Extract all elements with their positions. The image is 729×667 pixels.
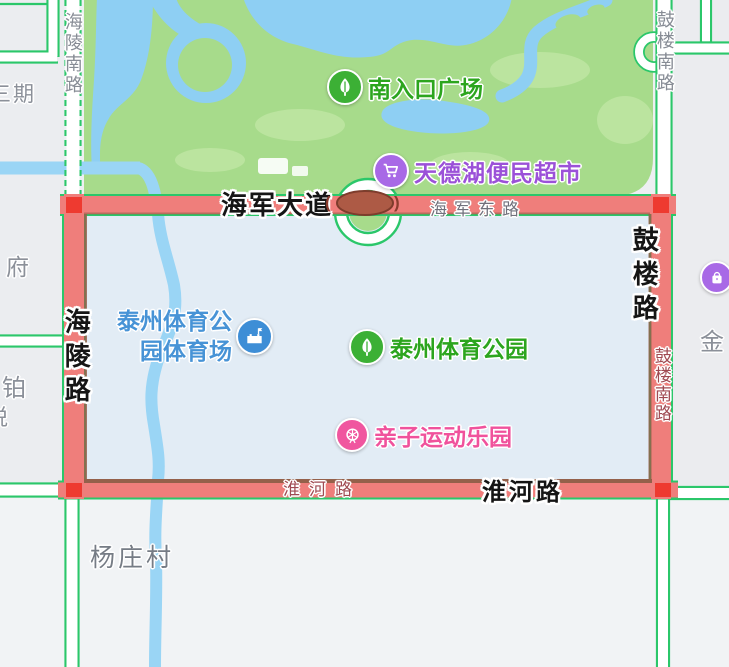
poi-south-entrance-plaza[interactable]: 南入口广场 [327, 69, 483, 105]
road-label-gulou-south-top: 鼓楼南路 [655, 10, 674, 94]
poi-kids-park[interactable]: 亲子运动乐园 [335, 418, 512, 452]
bg-bottom-area [0, 498, 729, 667]
plaza-shape [292, 166, 308, 176]
poi-label-stadium[interactable]: 泰州体育公 园体育场 [100, 306, 232, 366]
area-label-jin: 金 [700, 330, 724, 355]
road-label-hailing-south: 海陵南路 [63, 12, 82, 96]
ferris-wheel-icon[interactable] [335, 418, 369, 452]
stadium-icon[interactable] [236, 318, 273, 355]
road-label-hailing: 海陵路 [62, 308, 89, 410]
area-label-fu: 府 [6, 255, 29, 279]
poi-stadium[interactable]: 泰州体育公 园体育场 [100, 306, 273, 366]
road-label-huaihe-small: 淮河路 [283, 481, 361, 499]
road-label-gulou-south-on-road: 鼓楼南路 [652, 347, 670, 423]
bridge-mark-left: ( [325, 194, 331, 212]
poi-label-south-entrance-plaza[interactable]: 南入口广场 [368, 70, 483, 104]
road-label-haijun-east: 海军东路 [430, 201, 526, 219]
poi-label-tiandehu-market[interactable]: 天德湖便民超市 [414, 154, 582, 188]
shopping-cart-icon[interactable] [373, 153, 409, 189]
plaza-shape [258, 158, 288, 174]
pond-island [178, 38, 232, 92]
poi-label-kids-park[interactable]: 亲子运动乐园 [374, 418, 512, 452]
poi-tiandehu-market[interactable]: 天德湖便民超市 [373, 153, 582, 189]
bg-left-blocks [0, 0, 64, 500]
area-label-phase-three: 三期 [0, 84, 36, 106]
bridge-mark-right: ) [394, 194, 400, 212]
road-label-gulou: 鼓楼路 [630, 226, 657, 328]
poi-label-sports-park[interactable]: 泰州体育公园 [390, 330, 528, 364]
map-canvas[interactable]: 海陵南路 鼓楼南路 鼓楼南路 海军东路 淮河路 海军大道 海陵路 鼓楼路 淮河路… [0, 0, 729, 667]
bg-right-blocks [672, 0, 729, 500]
area-label-yangzhuang-village: 杨庄村 [90, 545, 174, 571]
poi-sports-park[interactable]: 泰州体育公园 [349, 329, 528, 365]
road-label-huaihe-bold: 淮河路 [482, 480, 563, 505]
poi-shop-marker[interactable] [700, 261, 729, 294]
bridge-oval [337, 191, 393, 215]
shopping-bag-icon[interactable] [700, 261, 729, 294]
tree-icon[interactable] [349, 329, 385, 365]
area-label-yue-partial: 悦 [0, 406, 8, 429]
road-label-haijun-avenue: 海军大道 [221, 192, 333, 219]
tree-icon[interactable] [327, 69, 363, 105]
area-label-bo: 铂 [2, 376, 26, 401]
